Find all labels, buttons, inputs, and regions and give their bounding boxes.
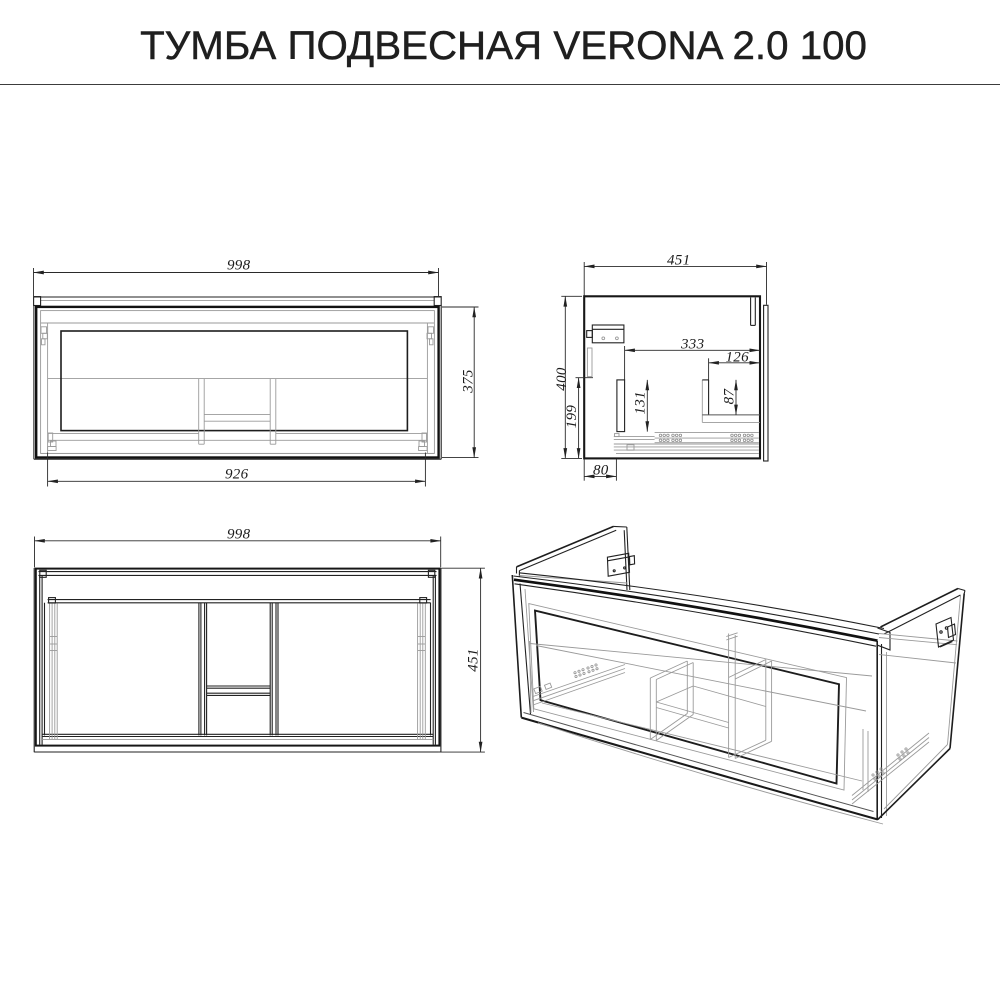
svg-text:199: 199 — [564, 405, 580, 429]
svg-text:400: 400 — [554, 367, 570, 391]
svg-text:998: 998 — [227, 258, 251, 274]
svg-text:126: 126 — [726, 350, 750, 366]
svg-text:926: 926 — [225, 467, 249, 483]
svg-text:375: 375 — [460, 369, 476, 394]
svg-text:333: 333 — [680, 337, 704, 353]
svg-text:87: 87 — [721, 388, 737, 405]
svg-text:451: 451 — [465, 648, 481, 671]
svg-text:998: 998 — [227, 527, 251, 543]
svg-text:80: 80 — [593, 463, 609, 479]
svg-text:131: 131 — [632, 391, 648, 414]
svg-text:451: 451 — [667, 253, 690, 269]
